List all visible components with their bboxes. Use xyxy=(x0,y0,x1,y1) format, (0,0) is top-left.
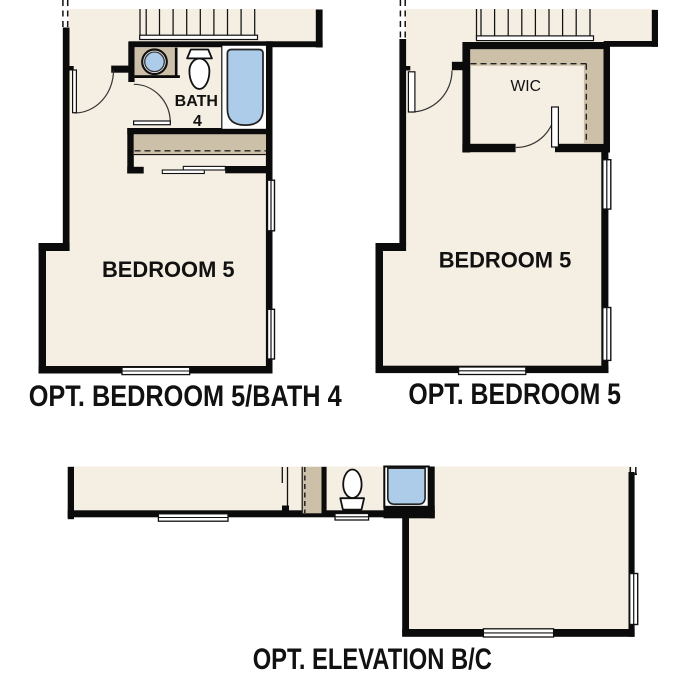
svg-text:BEDROOM 5: BEDROOM 5 xyxy=(439,248,572,273)
svg-text:OPT. BEDROOM 5/BATH 4: OPT. BEDROOM 5/BATH 4 xyxy=(29,380,342,413)
svg-text:OPT. BEDROOM 5: OPT. BEDROOM 5 xyxy=(408,378,621,411)
svg-text:WIC: WIC xyxy=(510,78,541,95)
svg-text:4: 4 xyxy=(193,113,202,130)
svg-text:BATH: BATH xyxy=(175,93,218,110)
svg-text:OPT. ELEVATION B/C: OPT. ELEVATION B/C xyxy=(253,643,492,676)
svg-text:BEDROOM 5: BEDROOM 5 xyxy=(102,257,235,282)
